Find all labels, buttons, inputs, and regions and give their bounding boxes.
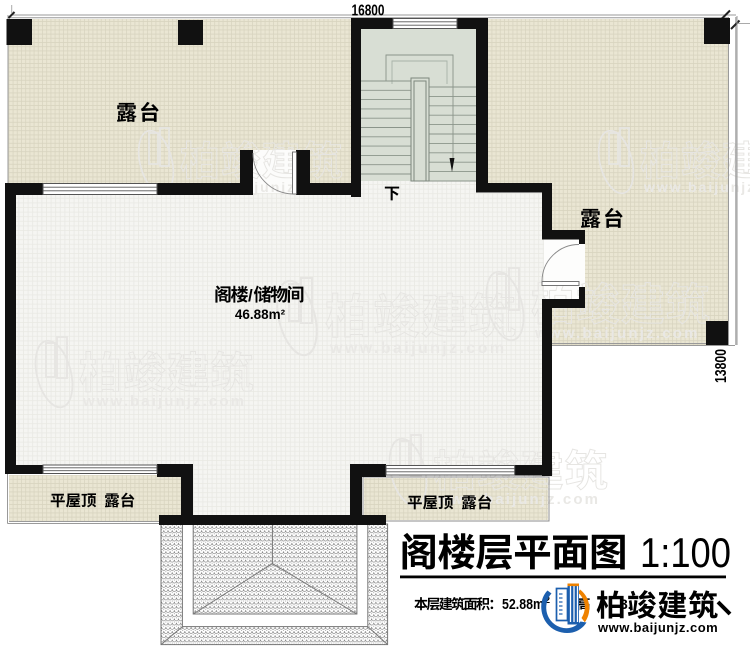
svg-text:www.baijunjz.com: www.baijunjz.com: [436, 491, 600, 508]
svg-text:www.baijunjz.com: www.baijunjz.com: [82, 393, 246, 410]
svg-text:16800: 16800: [352, 3, 385, 20]
svg-text:www.baijunjz.com: www.baijunjz.com: [534, 325, 700, 342]
svg-text:/: /: [248, 286, 253, 305]
svg-text:www.baijunjz.com: www.baijunjz.com: [329, 340, 507, 357]
svg-text:www.baijunjz.com: www.baijunjz.com: [643, 179, 750, 195]
svg-text:52.88m: 52.88m: [502, 596, 544, 613]
svg-text:46.88m²: 46.88m²: [235, 307, 286, 322]
svg-text:1:100: 1:100: [640, 529, 731, 576]
svg-text:13800: 13800: [713, 349, 730, 383]
svg-text:www.baijunjz.com: www.baijunjz.com: [597, 620, 718, 635]
